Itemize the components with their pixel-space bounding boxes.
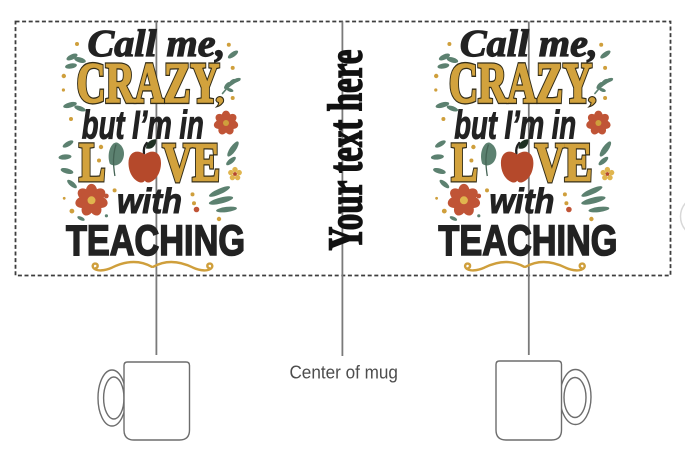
svg-text:Center of mug: Center of mug bbox=[289, 362, 398, 383]
svg-text:Your text here: Your text here bbox=[318, 50, 373, 251]
